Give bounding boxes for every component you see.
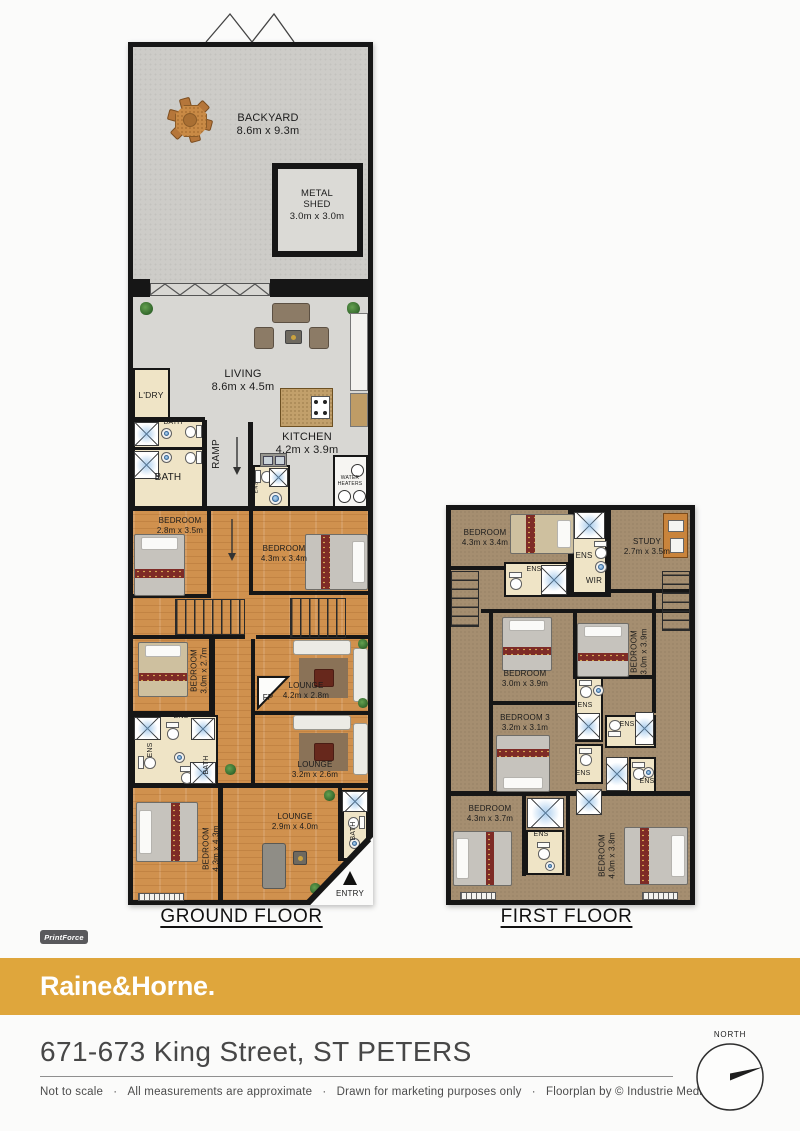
bed-runner xyxy=(497,749,549,757)
bed-runner xyxy=(135,569,184,578)
window-sill xyxy=(460,892,496,900)
room-label: WIR xyxy=(539,576,649,588)
kitchen-counter xyxy=(350,313,368,391)
toilet-tank xyxy=(537,842,550,848)
deck-zigzag xyxy=(150,283,270,296)
toilet xyxy=(579,748,592,766)
wall xyxy=(270,279,368,297)
toilet-tank xyxy=(196,451,202,464)
printforce-label: PrintForce xyxy=(44,933,84,942)
room-label: METAL SHED3.0m x 3.0m xyxy=(288,188,346,224)
wall xyxy=(652,593,656,713)
ground-floor-plan: BACKYARD8.6m x 9.3mMETAL SHED3.0m x 3.0m… xyxy=(128,42,373,905)
toilet-tank xyxy=(632,762,645,768)
toilet-bowl xyxy=(510,578,522,589)
room-label: BEDROOM4.0m x 3.8m xyxy=(598,801,619,906)
bed xyxy=(496,735,550,792)
gate-icon xyxy=(202,11,300,44)
room-label: KITCHEN4.2m x 3.9m xyxy=(252,431,362,459)
ottoman xyxy=(314,743,334,761)
toilet xyxy=(579,680,592,698)
shower xyxy=(269,468,288,487)
bed-runner xyxy=(139,673,187,681)
wall xyxy=(202,420,207,510)
bed xyxy=(136,802,198,862)
toilet-tank xyxy=(359,816,365,829)
compass-icon xyxy=(694,1041,766,1113)
toilet xyxy=(184,451,202,464)
toilet xyxy=(166,722,179,740)
room-label: FP xyxy=(213,693,323,705)
bed-runner xyxy=(171,803,180,861)
toilet-bowl xyxy=(538,848,550,859)
room-label: ENS xyxy=(572,721,682,731)
bed-pillow xyxy=(139,810,152,854)
sofa xyxy=(293,715,351,730)
bed-pillow xyxy=(141,537,178,550)
bed-runner xyxy=(578,653,628,661)
bed xyxy=(138,642,188,697)
room-label: BEDROOM3.0m x 2.7m xyxy=(190,616,211,726)
room-label: LOUNGE2.9m x 4.0m xyxy=(240,812,350,833)
raine-horne-logo: Raine&Horne. xyxy=(40,971,215,1002)
stairs xyxy=(290,598,346,638)
toilet-bowl xyxy=(580,754,592,765)
wall xyxy=(133,447,203,450)
basin xyxy=(161,428,172,439)
outdoor-table xyxy=(167,97,213,143)
stairs xyxy=(662,571,690,631)
room-label: BEDROOM4.3m x 3.7m xyxy=(446,804,545,825)
room-label: WATER HEATERS xyxy=(335,475,365,489)
sofa xyxy=(262,843,286,889)
first-floor-plan: BEDROOM4.3m x 3.4mENSSTUDY2.7m x 3.5mENS… xyxy=(446,505,695,905)
room-label: BATH xyxy=(128,472,223,486)
printforce-badge: PrintForce xyxy=(40,930,88,944)
north-compass: NORTH xyxy=(694,1030,766,1120)
laptop xyxy=(668,520,684,532)
room-label: BEDROOM4.3m x 3.4m xyxy=(229,544,339,565)
room-label: ENS xyxy=(592,778,695,788)
wall xyxy=(481,609,690,613)
wall xyxy=(249,591,368,595)
toilet-bowl xyxy=(580,686,592,697)
bed xyxy=(502,617,552,671)
room-label: STUDY2.7m x 3.5m xyxy=(592,537,695,558)
sofa xyxy=(293,640,351,655)
room-label: L'DRY xyxy=(128,390,206,402)
bed-pillow xyxy=(352,541,365,582)
brand-band: Raine&Horne. xyxy=(0,958,800,1015)
bed-pillow xyxy=(584,626,622,637)
toilet-tank xyxy=(608,731,621,737)
toilet-bowl xyxy=(185,452,196,464)
stairs xyxy=(451,571,479,627)
disclaimer-text: Not to scale · All measurements are appr… xyxy=(40,1086,709,1098)
bed xyxy=(134,534,185,596)
water-heater xyxy=(338,490,351,503)
basin xyxy=(174,752,185,763)
cooktop xyxy=(311,396,330,418)
coffee-table xyxy=(293,851,307,865)
plant xyxy=(324,790,335,801)
toilet-tank xyxy=(138,756,144,769)
bed-runner xyxy=(640,828,649,884)
room-label: BEDROOM3.0m x 3.9m xyxy=(630,597,651,707)
bed-pillow xyxy=(145,645,182,657)
window-sill xyxy=(138,893,184,901)
property-address: 671-673 King Street, ST PETERS xyxy=(40,1036,472,1068)
room-label: ENS xyxy=(254,433,263,543)
room-label: BATH xyxy=(350,776,360,886)
bed xyxy=(624,827,688,885)
room-label: RAMP xyxy=(211,399,225,509)
coffee-table xyxy=(285,330,302,344)
toilet-tank xyxy=(579,748,592,754)
plant xyxy=(140,302,153,315)
toilet-tank xyxy=(579,680,592,686)
wall xyxy=(568,593,611,597)
room-label: ENS xyxy=(486,831,596,841)
room-label: BEDROOM2.8m x 3.5m xyxy=(128,516,235,537)
bed-runner xyxy=(503,647,551,655)
bed-pillow xyxy=(671,835,684,878)
table-center xyxy=(183,113,197,127)
toilet xyxy=(537,842,550,860)
room-label: BACKYARD8.6m x 9.3m xyxy=(213,112,323,140)
kitchen-counter xyxy=(350,393,368,427)
sofa xyxy=(309,327,329,349)
room-label: ENS xyxy=(479,566,589,576)
sofa xyxy=(272,303,310,323)
bed xyxy=(577,623,629,677)
bed-pillow xyxy=(557,520,570,549)
basin xyxy=(643,767,654,778)
direction-arrow xyxy=(232,437,242,475)
room-label: ENS xyxy=(530,702,640,712)
first-floor-title: FIRST FLOOR xyxy=(442,906,691,928)
sofa xyxy=(254,327,274,349)
divider-line xyxy=(40,1076,673,1077)
floorplan-page: BACKYARD8.6m x 9.3mMETAL SHED3.0m x 3.0m… xyxy=(0,0,800,1131)
room-label: BEDROOM3.0m x 3.9m xyxy=(470,669,580,690)
basin xyxy=(161,452,172,463)
toilet-bowl xyxy=(167,728,179,739)
basin xyxy=(545,861,555,871)
wall xyxy=(451,791,690,796)
basin xyxy=(593,685,604,696)
bed-pillow xyxy=(509,620,546,631)
basin xyxy=(269,492,282,505)
window-sill xyxy=(642,892,678,900)
room-label: ENS xyxy=(128,713,236,723)
water-heater xyxy=(353,490,366,503)
wall xyxy=(133,279,150,297)
bed-pillow xyxy=(456,838,468,878)
plant xyxy=(225,764,236,775)
plant xyxy=(358,639,368,649)
wall xyxy=(133,783,368,788)
room-label: ENTRY xyxy=(295,889,373,901)
room-label: BEDROOM 33.2m x 3.1m xyxy=(470,713,580,734)
room-label: BEDROOM4.3m x 4.3m xyxy=(202,794,223,904)
north-label: NORTH xyxy=(694,1030,766,1039)
room-label: ENS xyxy=(147,695,157,805)
shower xyxy=(574,512,605,539)
ground-floor-title: GROUND FLOOR xyxy=(119,906,364,928)
room-label: BEDROOM4.3m x 3.4m xyxy=(446,528,540,549)
